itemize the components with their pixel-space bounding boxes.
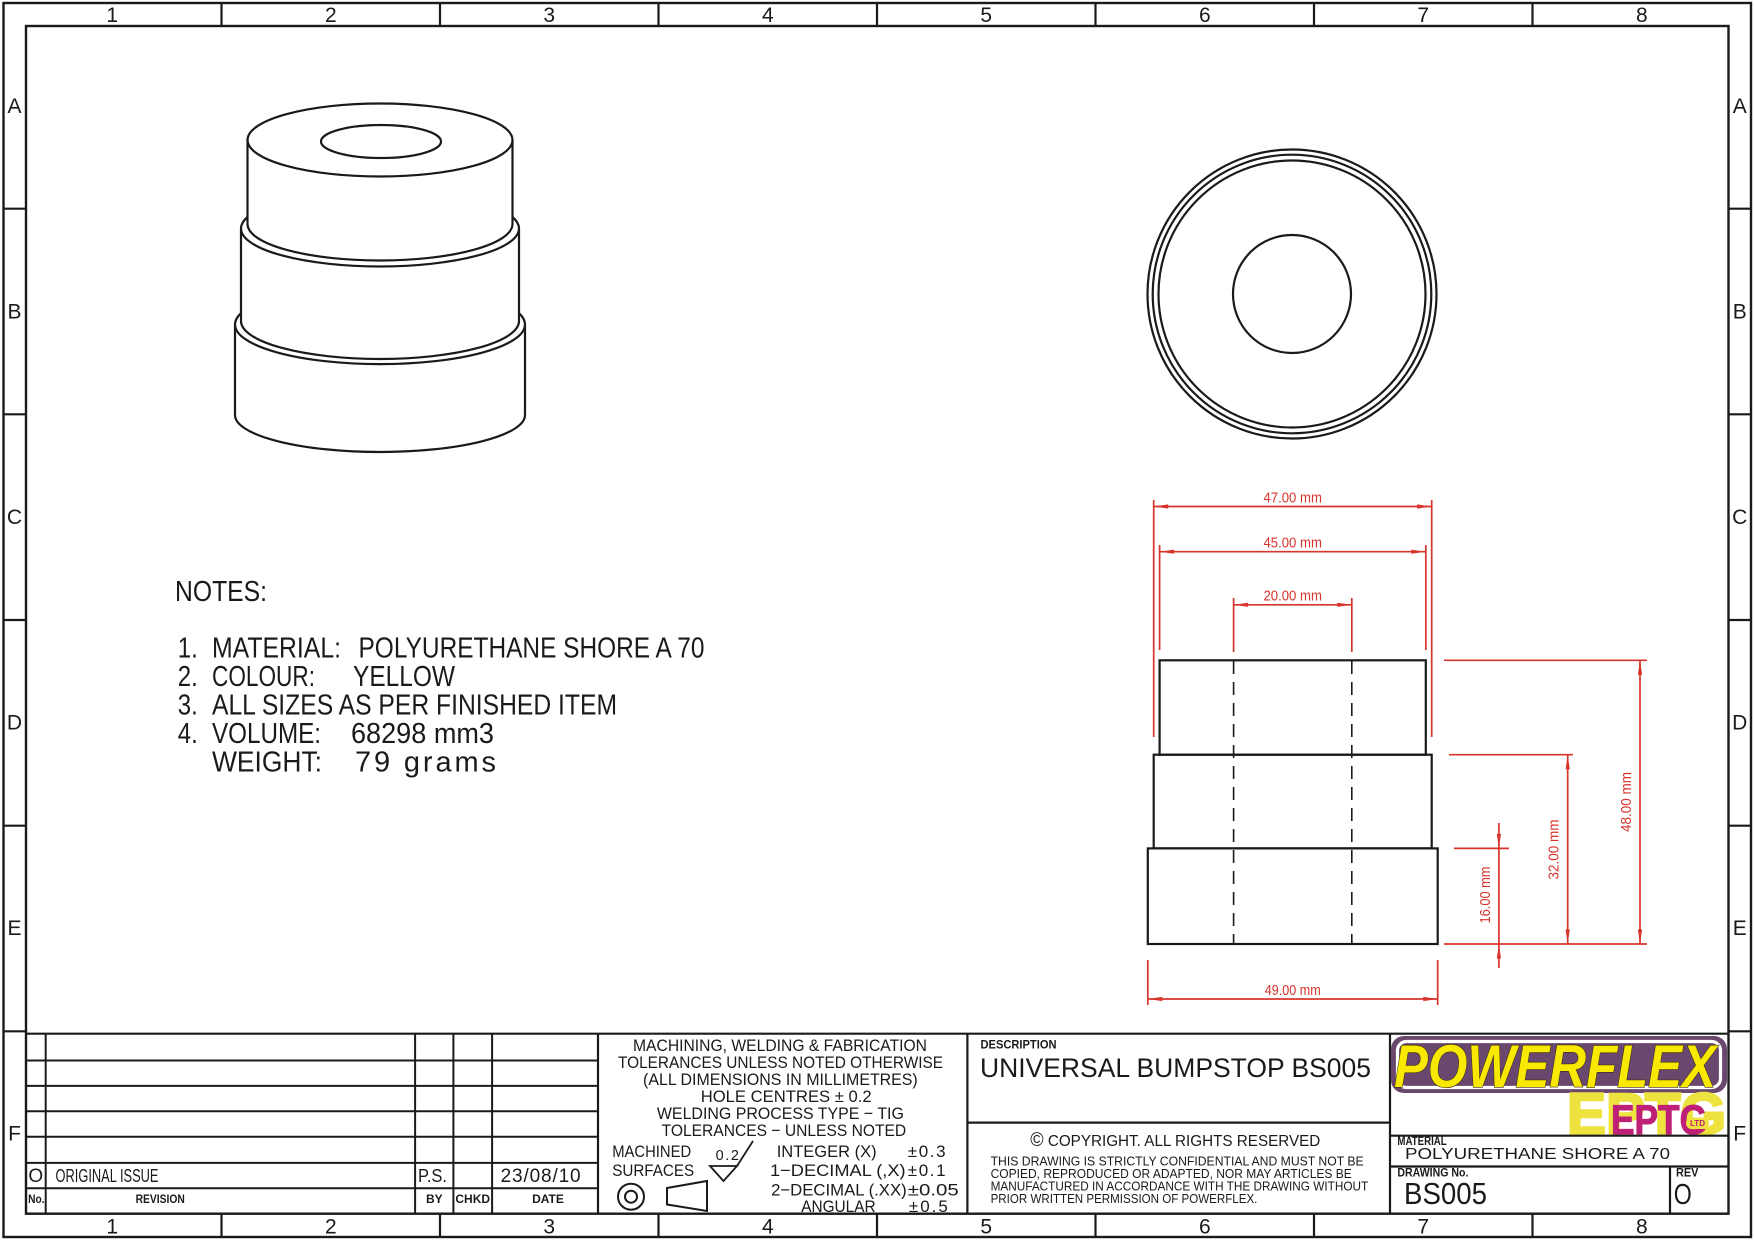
svg-text:±0.1: ±0.1 <box>908 1161 946 1180</box>
svg-text:REV: REV <box>1676 1166 1698 1180</box>
svg-text:6: 6 <box>1199 1216 1211 1239</box>
svg-text:4: 4 <box>762 1216 774 1239</box>
svg-text:2: 2 <box>325 1216 337 1239</box>
svg-text:ANGULAR: ANGULAR <box>801 1197 875 1216</box>
svg-text:B: B <box>7 301 21 324</box>
svg-text:POLYURETHANE SHORE A 70: POLYURETHANE SHORE A 70 <box>1405 1146 1670 1163</box>
svg-text:MACHINED: MACHINED <box>612 1142 691 1161</box>
svg-text:O: O <box>1674 1179 1692 1211</box>
svg-text:© COPYRIGHT. ALL RIGHTS RE: © COPYRIGHT. ALL RIGHTS RESERVED <box>1030 1130 1320 1151</box>
svg-text:O: O <box>28 1166 43 1187</box>
svg-text:A: A <box>7 95 21 118</box>
svg-text:No.: No. <box>28 1192 44 1206</box>
svg-text:1: 1 <box>106 4 118 27</box>
svg-text:B: B <box>1733 301 1747 324</box>
svg-text:ORIGINAL ISSUE: ORIGINAL ISSUE <box>56 1166 159 1186</box>
svg-text:4.: 4. <box>178 718 198 750</box>
svg-text:45.00 mm: 45.00 mm <box>1264 536 1322 552</box>
svg-text:E: E <box>1733 917 1747 940</box>
svg-text:2: 2 <box>325 4 337 27</box>
svg-text:LTD: LTD <box>1690 1119 1705 1128</box>
svg-text:±0.5: ±0.5 <box>909 1197 948 1216</box>
svg-text:3: 3 <box>543 4 555 27</box>
svg-text:SURFACES: SURFACES <box>612 1161 694 1180</box>
svg-text:D: D <box>1732 712 1747 735</box>
svg-text:F: F <box>1733 1123 1746 1146</box>
svg-text:16.00 mm: 16.00 mm <box>1478 867 1494 924</box>
svg-text:YELLOW: YELLOW <box>353 661 456 693</box>
svg-text:0.2: 0.2 <box>716 1148 739 1164</box>
svg-text:ALL SIZES AS PER FINISHED ITEM: ALL SIZES AS PER FINISHED ITEM <box>212 690 617 722</box>
svg-text:REVISION: REVISION <box>136 1192 185 1206</box>
svg-text:20.00 mm: 20.00 mm <box>1264 589 1322 605</box>
svg-text:P.S.: P.S. <box>418 1166 447 1186</box>
svg-text:TOLERANCES − UNLESS NOTED: TOLERANCES − UNLESS NOTED <box>662 1121 907 1140</box>
svg-text:INTEGER (X): INTEGER (X) <box>777 1142 877 1161</box>
svg-text:VOLUME:: VOLUME: <box>212 718 321 750</box>
svg-text:C: C <box>1732 506 1747 529</box>
svg-text:6: 6 <box>1199 4 1211 27</box>
svg-text:D: D <box>7 712 22 735</box>
svg-text:3.: 3. <box>178 690 198 722</box>
svg-text:UNIVERSAL BUMPSTOP BS005: UNIVERSAL BUMPSTOP BS005 <box>980 1053 1371 1083</box>
svg-text:5: 5 <box>980 4 992 27</box>
svg-text:8: 8 <box>1636 4 1648 27</box>
svg-text:C: C <box>7 506 22 529</box>
svg-text:DATE: DATE <box>532 1192 564 1206</box>
svg-text:CHKD: CHKD <box>455 1192 490 1206</box>
svg-text:COLOUR:: COLOUR: <box>212 661 315 693</box>
svg-text:48.00 mm: 48.00 mm <box>1619 772 1635 832</box>
svg-text:8: 8 <box>1636 1216 1648 1239</box>
svg-text:MATERIAL:: MATERIAL: <box>212 633 341 665</box>
svg-text:7: 7 <box>1417 1216 1429 1239</box>
svg-text:A: A <box>1733 95 1747 118</box>
svg-text:BS005: BS005 <box>1404 1176 1487 1211</box>
svg-text:NOTES:: NOTES: <box>175 576 267 608</box>
svg-text:4: 4 <box>762 4 774 27</box>
svg-text:2.: 2. <box>178 661 198 693</box>
svg-text:±0.3: ±0.3 <box>908 1142 946 1161</box>
svg-text:WEIGHT:: WEIGHT: <box>212 747 322 779</box>
svg-text:68298 mm3: 68298 mm3 <box>351 718 494 750</box>
svg-text:49.00 mm: 49.00 mm <box>1265 983 1321 999</box>
svg-text:DESCRIPTION: DESCRIPTION <box>981 1038 1057 1052</box>
svg-text:1: 1 <box>106 1216 118 1239</box>
svg-text:1.: 1. <box>178 633 198 665</box>
svg-text:47.00 mm: 47.00 mm <box>1264 491 1322 507</box>
svg-text:BY: BY <box>426 1192 443 1206</box>
svg-text:3: 3 <box>543 1216 555 1239</box>
svg-text:POLYURETHANE SHORE A 70: POLYURETHANE SHORE A 70 <box>359 633 705 665</box>
svg-text:79 grams: 79 grams <box>355 747 496 779</box>
svg-text:32.00 mm: 32.00 mm <box>1547 820 1563 880</box>
svg-text:F: F <box>8 1123 21 1146</box>
svg-text:7: 7 <box>1417 4 1429 27</box>
svg-text:1−DECIMAL (,X): 1−DECIMAL (,X) <box>770 1161 906 1180</box>
svg-text:23/08/10: 23/08/10 <box>501 1166 581 1187</box>
svg-text:E: E <box>7 917 21 940</box>
svg-text:5: 5 <box>980 1216 992 1239</box>
svg-text:PRIOR WRITTEN PERMISSION OF: PRIOR WRITTEN PERMISSION OF POWERFLEX. <box>991 1191 1258 1206</box>
